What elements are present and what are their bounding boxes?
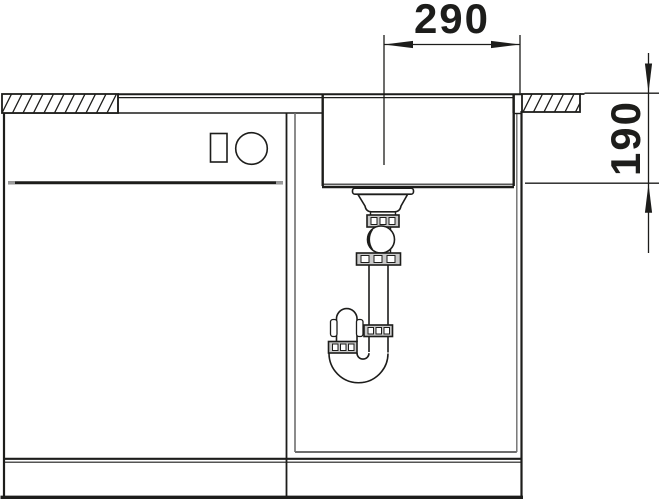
pipe-nut-top (367, 215, 399, 227)
dimension-label-horizontal: 290 (414, 0, 490, 42)
ball-joint (368, 226, 395, 253)
base-cabinet (3, 111, 522, 498)
front-symbol-circle (236, 133, 268, 165)
dimension-horizontal-290: 290 (384, 0, 520, 165)
arrowhead-right (491, 41, 520, 48)
worktop-hatched-section-left (2, 94, 118, 113)
worktop-hatched-section-right (522, 94, 585, 112)
arrowhead-up (645, 184, 652, 213)
drain-strainer-assembly (353, 188, 414, 215)
sink-basin (322, 95, 514, 187)
arrowhead-down (645, 64, 652, 93)
siphon-trap-u-bend (329, 353, 388, 383)
front-symbol-rectangle (211, 134, 228, 163)
pipe-nut-mid (364, 325, 393, 337)
dimension-vertical-190: 190 (525, 53, 659, 253)
pipe-nut-lower (329, 342, 358, 354)
pipe-nut-upper (357, 253, 401, 265)
sink-installation-diagram: 290 190 (0, 0, 663, 501)
tailpipe (369, 265, 388, 353)
diagram-canvas: 290 190 (0, 0, 663, 501)
sink-rim-surface (118, 94, 522, 113)
arrowhead-left (384, 41, 413, 48)
cabinet-divider (287, 113, 296, 496)
siphon-trap-riser (331, 309, 364, 342)
dimension-label-vertical: 190 (602, 100, 649, 176)
